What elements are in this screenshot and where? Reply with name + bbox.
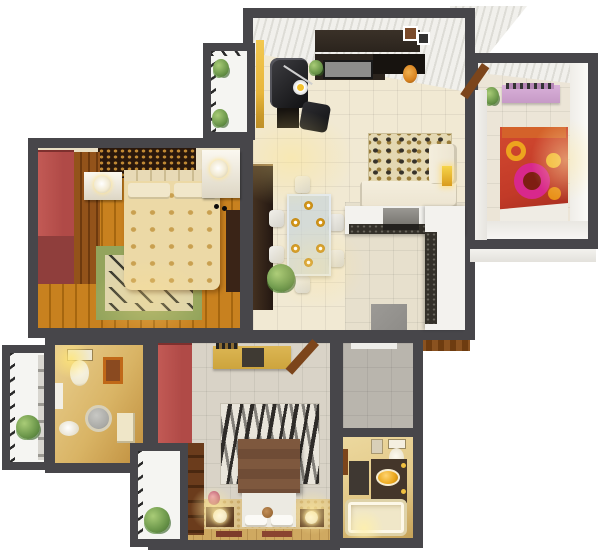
dining-chair (295, 176, 310, 193)
plate-icon (316, 218, 325, 227)
floor-plan-stage (0, 0, 600, 559)
dining-chair (269, 210, 284, 227)
plate-icon (304, 258, 313, 267)
dining-table (287, 194, 331, 276)
railing (10, 353, 15, 462)
utility-bathroom-2 (333, 333, 423, 548)
arc-lamp (293, 80, 308, 95)
gold-sink (376, 469, 400, 486)
living-dining-room (243, 8, 475, 340)
door-mat (55, 383, 63, 409)
tv-screen (323, 60, 373, 79)
dresser-knob-icon (214, 204, 219, 209)
kids-sheet (500, 203, 568, 221)
balcony-bottom-left (130, 443, 188, 547)
palm-plant-icon (267, 264, 295, 292)
side-table (277, 108, 299, 128)
plate-icon (291, 244, 300, 253)
plant-icon (213, 59, 229, 77)
sink (59, 421, 79, 436)
flower-vase-icon (208, 491, 220, 505)
kitchen-granite-right (425, 232, 437, 324)
teddy-icon (262, 507, 273, 518)
red-wardrobe (158, 343, 192, 443)
dresser (226, 210, 240, 292)
pillow (128, 183, 170, 199)
plant-icon (144, 507, 170, 533)
kids-bedroom (468, 53, 598, 249)
red-cabinet-low (38, 236, 74, 284)
kitchen-outer-wall-face (475, 90, 487, 240)
bed2-blanket (238, 439, 300, 493)
kids-bed (500, 127, 568, 221)
master-bedroom (28, 138, 250, 338)
sofa-lamp (442, 166, 452, 186)
stove (383, 208, 419, 230)
dining-chair (329, 250, 344, 267)
plate-icon (291, 218, 300, 227)
utility-floor (343, 343, 413, 428)
dining-chair (329, 214, 344, 231)
plate-icon (304, 201, 313, 210)
desk-tv (242, 348, 264, 367)
table-lamp-icon (210, 160, 228, 178)
railing (138, 451, 143, 539)
table-lamp-icon (94, 176, 111, 193)
yellow-circle-icon (548, 187, 561, 200)
table-lamp-icon (305, 511, 318, 524)
picture-frame-icon (103, 357, 123, 384)
books (216, 343, 238, 349)
red-wardrobe (38, 150, 74, 236)
railing (211, 51, 247, 56)
kids-outer-wall-face (470, 249, 596, 262)
plant-icon (309, 60, 323, 75)
table-lamp-icon (213, 509, 227, 523)
flowers-icon (403, 65, 417, 83)
ottoman (299, 101, 331, 133)
plant-icon (212, 109, 228, 127)
door-frame (343, 449, 348, 475)
yellow-screen (256, 40, 264, 128)
yellow-ring-icon (506, 141, 526, 161)
pink-ring-icon (514, 163, 550, 199)
plant-icon (16, 415, 40, 439)
books (506, 83, 554, 89)
utility-door (351, 343, 397, 349)
bath-mat (349, 461, 369, 495)
window-frame (38, 355, 44, 460)
wall-cabinet (253, 164, 273, 310)
refrigerator (371, 304, 407, 330)
bath-cabinet (117, 413, 135, 443)
balcony-top-left (203, 43, 255, 140)
dining-chair (295, 276, 310, 293)
floating-shelf (373, 54, 425, 74)
divider-wall (343, 428, 413, 437)
kids-pillow (502, 127, 566, 138)
plate-icon (316, 244, 325, 253)
faucet-icon (401, 489, 406, 494)
floor-mat (216, 531, 242, 537)
picture-frame-icon (403, 26, 418, 41)
bathtub (345, 499, 407, 536)
faucet-icon (401, 463, 406, 468)
yellow-circle-icon (546, 153, 561, 168)
round-mirror (85, 405, 112, 432)
switch-plate (371, 439, 383, 454)
toilet-bowl (70, 360, 89, 386)
dresser-knob-icon (222, 206, 227, 211)
dining-chair (269, 246, 284, 263)
kids-wall-face-bottom (478, 221, 588, 239)
picture-frame-icon (417, 32, 430, 45)
kids-wall-face (570, 63, 588, 239)
pillow (271, 515, 293, 527)
floor-mat (262, 531, 292, 537)
